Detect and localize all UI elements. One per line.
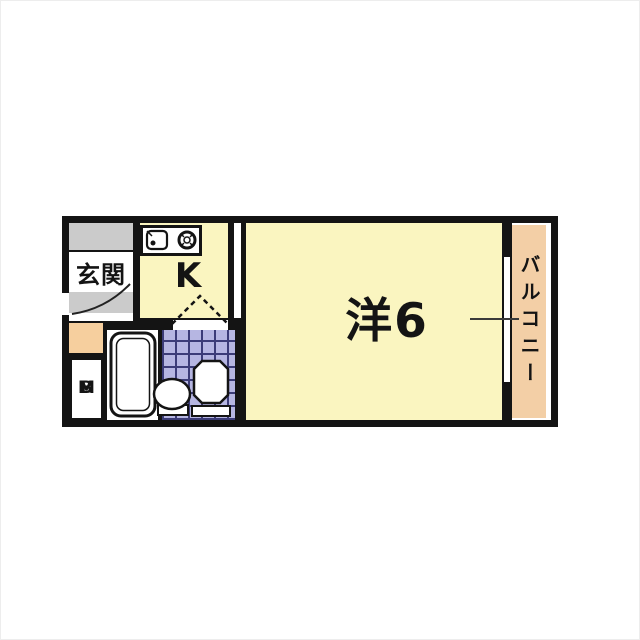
toilet-icon [192, 361, 230, 416]
door-swing-arc-icon [72, 284, 130, 314]
washbasin-icon [154, 379, 190, 415]
kitchen-sink-icon [147, 231, 167, 249]
bathtub-icon [111, 333, 155, 416]
floorplan-canvas: 玄関 M B K 洋6 バルコニー [62, 216, 558, 427]
stove-burner-icon [179, 232, 195, 248]
fixtures-overlay [62, 216, 558, 427]
folding-door-icon [172, 296, 228, 324]
